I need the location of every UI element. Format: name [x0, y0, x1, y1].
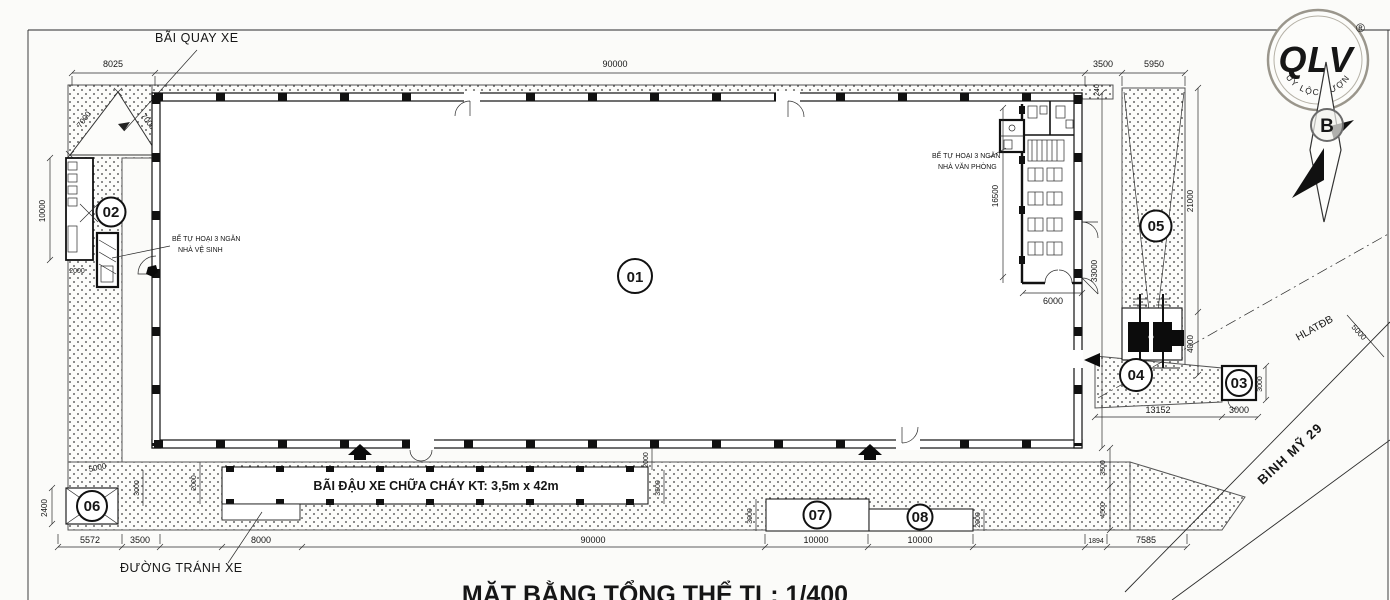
septic-toilet-label-1: BỂ TỰ HOẠI 3 NGĂN: [172, 234, 240, 243]
zone-08-text: 08: [912, 509, 929, 526]
zone-label-07: 07: [804, 502, 831, 529]
dim-right-240: 240: [1094, 84, 1101, 96]
company-name-text: QUY LỘC VƯỢNG: [0, 0, 1352, 97]
fire-parking-label: BÃI ĐẬU XE CHỮA CHÁY KT: 3,5m x 42m: [313, 478, 558, 493]
zone-label-03: 03: [1226, 370, 1252, 396]
dim-office-6000: 6000: [1043, 296, 1063, 306]
zone-label-02: 02: [97, 198, 126, 227]
septic-office-label-2: NHÀ VĂN PHÒNG: [938, 162, 997, 171]
dim-left-2400: 2400: [40, 499, 49, 517]
dim-strip-13152: 13152: [1145, 405, 1170, 415]
corridor-label: HLATĐB: [1294, 313, 1335, 343]
north-letter: B: [1320, 116, 1334, 137]
dim-left-10000: 10000: [38, 199, 47, 222]
dim-strip-4000: 4000: [1186, 335, 1195, 353]
zone-label-06: 06: [77, 491, 107, 521]
bypass-road-label: ĐƯỜNG TRÁNH XE: [120, 560, 243, 575]
dim-mid-3000: 3000: [747, 508, 754, 524]
drawing-title: MẶT BẰNG TỔNG THỂ TL: 1/400: [462, 579, 848, 600]
dim-strip-21000: 21000: [1186, 189, 1195, 212]
dim-bot-7585: 7585: [1136, 535, 1156, 545]
dim-hl-5000: 5000: [1350, 323, 1369, 343]
zone-label-05: 05: [1141, 211, 1172, 242]
dim-bot-10000-a: 10000: [803, 535, 828, 545]
zone-02-text: 02: [103, 204, 120, 221]
dim-b03-3000-h: 3000: [1229, 405, 1249, 415]
zone-label-01: 01: [618, 259, 652, 293]
zone-label-04: 04: [1120, 359, 1152, 391]
dim-bot-3500: 3500: [130, 535, 150, 545]
dim-office-16500: 16500: [991, 184, 1000, 207]
zone-03-text: 03: [1231, 375, 1248, 392]
zone-04-text: 04: [1128, 367, 1145, 384]
site-plan-drawing: BÌNH MỸ 29 HLATĐB 5000 BÃI QUAY XE 7000 …: [0, 0, 1390, 600]
turning-area-label: BÃI QUAY XE: [155, 31, 239, 45]
dim-right-4500: 4500: [1100, 502, 1107, 518]
road-name-label: BÌNH MỸ 29: [1254, 420, 1325, 488]
dim-right-33000: 33000: [1090, 259, 1099, 282]
zone-label-08: 08: [908, 505, 933, 530]
svg-text:QUY LỘC VƯỢNG: QUY LỘC VƯỢNG: [0, 0, 1352, 97]
dim-bot-90000: 90000: [580, 535, 605, 545]
dim-top-90000: 90000: [602, 59, 627, 69]
septic-office-label-1: BỂ TỰ HOẠI 3 NGĂN: [932, 151, 1000, 160]
zone-06-text: 06: [84, 498, 101, 515]
dim-lane-3000-l: 3000: [134, 480, 141, 496]
dim-top-3500: 3500: [1093, 59, 1113, 69]
plan-canvas: BÌNH MỸ 29 HLATĐB 5000 BÃI QUAY XE 7000 …: [0, 0, 1390, 600]
dim-bot-1894: 1894: [1088, 538, 1104, 545]
dim-right-3500: 3500: [1100, 460, 1107, 476]
septic-toilet-label-2: NHÀ VỆ SINH: [178, 245, 223, 254]
dim-top-5950: 5950: [1144, 59, 1164, 69]
dim-bot-8000: 8000: [251, 535, 271, 545]
registered-mark: ®: [1356, 21, 1365, 35]
dim-lane-2000-r: 2000: [643, 452, 650, 468]
zone-01-text: 01: [627, 269, 644, 286]
dim-bot-10000-b: 10000: [907, 535, 932, 545]
zone-07-text: 07: [809, 507, 826, 524]
dim-lane-2000-l: 2000: [191, 475, 198, 491]
dim-b03-3000-v: 3000: [1257, 376, 1264, 392]
dim-lane-3500-r: 3500: [655, 480, 662, 496]
dim-mid-2000: 2000: [975, 512, 982, 528]
dim-bot-5572: 5572: [80, 535, 100, 545]
dim-left-2000: 2000: [69, 268, 85, 275]
zone-05-text: 05: [1148, 218, 1165, 235]
dim-top-8025: 8025: [103, 59, 123, 69]
